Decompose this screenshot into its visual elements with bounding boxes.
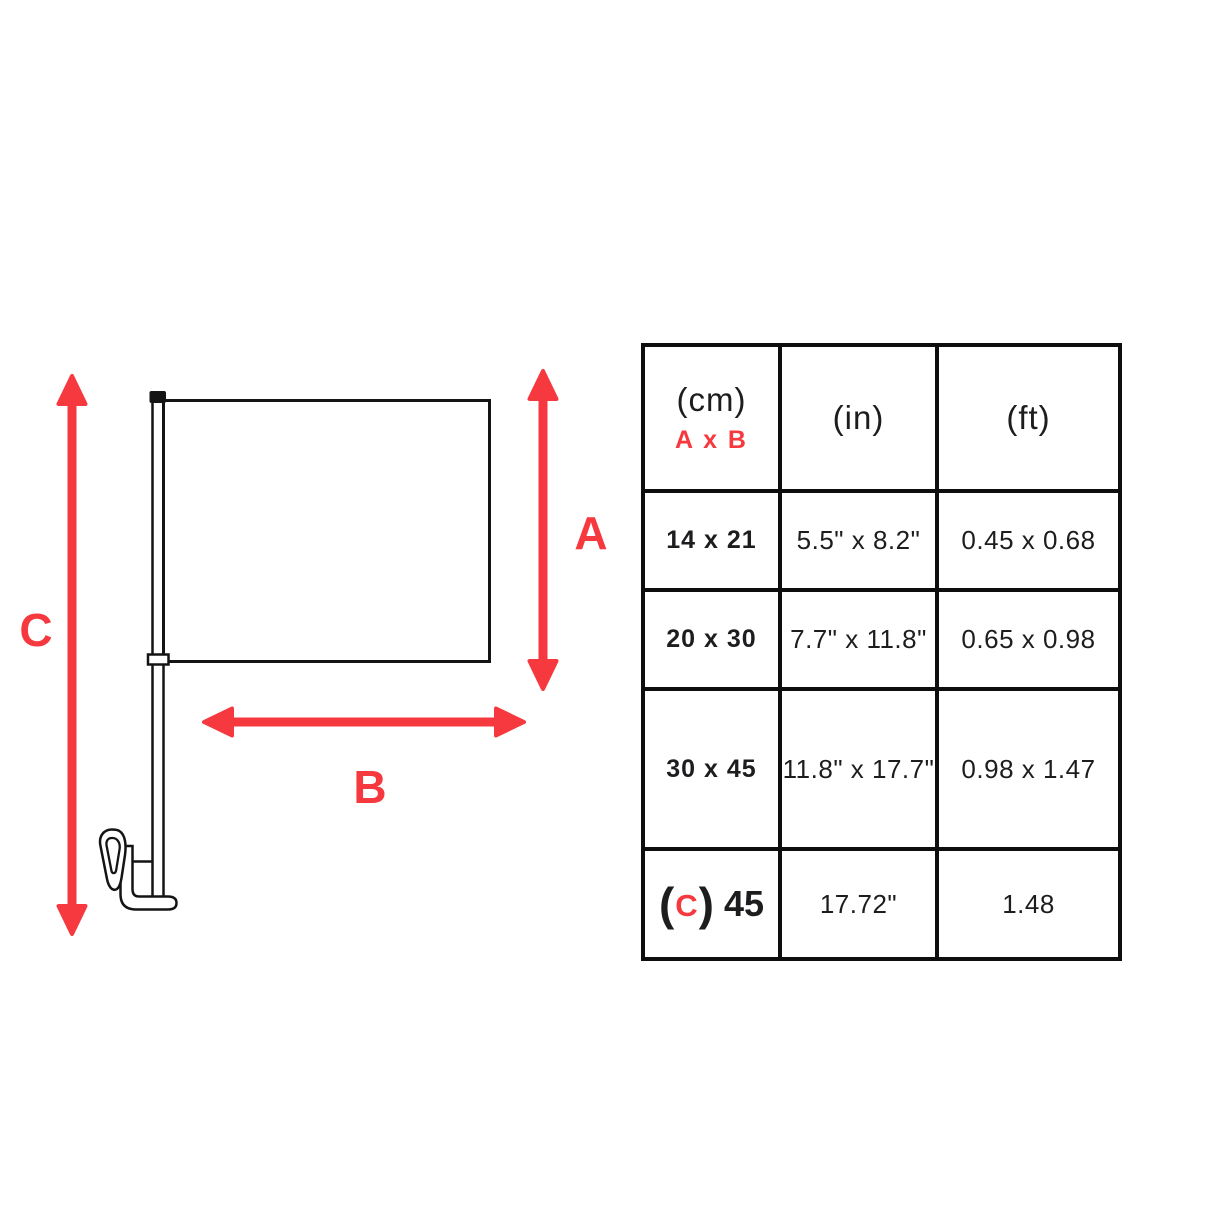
size-row-14x21: 14 x 21 5.5" x 8.2" 0.45 x 0.68 [643, 491, 1120, 590]
cell-ft-30x45: 0.98 x 1.47 [937, 689, 1120, 849]
c45-value: 45 [724, 883, 764, 924]
cell-ft-20x30: 0.65 x 0.98 [937, 590, 1120, 689]
dimension-arrow-b-icon [204, 709, 524, 736]
header-cm-unit: (cm) [645, 381, 778, 419]
size-table: (cm) A x B (in) (ft) 14 x 21 5.5" x 8.2"… [641, 343, 1122, 961]
cell-cm-14x21: 14 x 21 [643, 491, 780, 590]
size-row-20x30: 20 x 30 7.7" x 11.8" 0.65 x 0.98 [643, 590, 1120, 689]
header-axb-label: A x B [645, 426, 778, 455]
cell-in-30x45: 11.8" x 17.7" [780, 689, 937, 849]
cell-cm-c45: (C)45 [643, 849, 780, 959]
dimension-label-b: B [344, 761, 396, 813]
car-flag-graphic [100, 391, 489, 910]
c45-letter-c: C [675, 888, 697, 923]
cell-cm-20x30: 20 x 30 [643, 590, 780, 689]
flag-panel [164, 401, 490, 662]
size-row-30x45: 30 x 45 11.8" x 17.7" 0.98 x 1.47 [643, 689, 1120, 849]
dimension-label-a: A [565, 507, 617, 559]
cell-in-c45: 17.72" [780, 849, 937, 959]
size-table-header-row: (cm) A x B (in) (ft) [643, 345, 1120, 491]
pole-collar [148, 655, 169, 665]
cell-ft-14x21: 0.45 x 0.68 [937, 491, 1120, 590]
cell-in-20x30: 7.7" x 11.8" [780, 590, 937, 689]
flag-pole [153, 397, 164, 902]
header-cell-in: (in) [780, 345, 937, 491]
cell-in-14x21: 5.5" x 8.2" [780, 491, 937, 590]
c45-close-paren: ) [699, 878, 714, 930]
dimension-arrow-c-icon [59, 376, 86, 934]
header-cell-ft: (ft) [937, 345, 1120, 491]
dimension-label-c: C [10, 604, 62, 656]
pole-cap [150, 391, 167, 403]
cell-cm-30x45: 30 x 45 [643, 689, 780, 849]
clip-base [121, 846, 177, 910]
header-cell-cm: (cm) A x B [643, 345, 780, 491]
c45-open-paren: ( [659, 878, 674, 930]
page-canvas: A B C (cm) A x B (in) (ft) 14 x 21 5.5" … [0, 0, 1214, 1214]
dimension-arrow-a-icon [530, 371, 557, 689]
size-row-c45: (C)45 17.72" 1.48 [643, 849, 1120, 959]
cell-ft-c45: 1.48 [937, 849, 1120, 959]
